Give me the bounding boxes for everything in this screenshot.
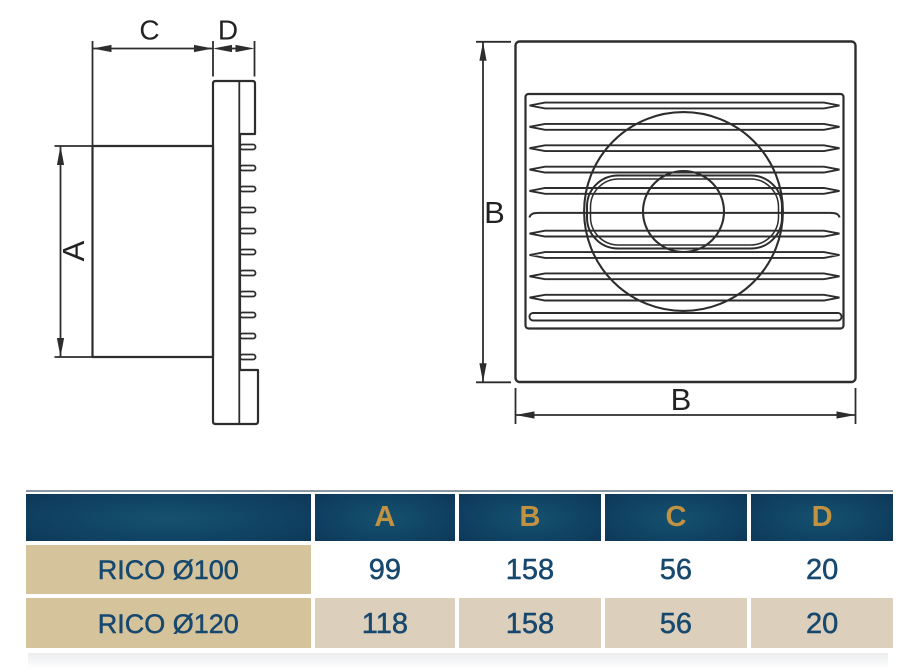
svg-text:B: B [484, 195, 505, 230]
svg-text:D: D [218, 15, 238, 46]
svg-text:C: C [139, 15, 159, 46]
svg-text:A: A [56, 240, 91, 261]
svg-text:B: B [671, 382, 692, 417]
